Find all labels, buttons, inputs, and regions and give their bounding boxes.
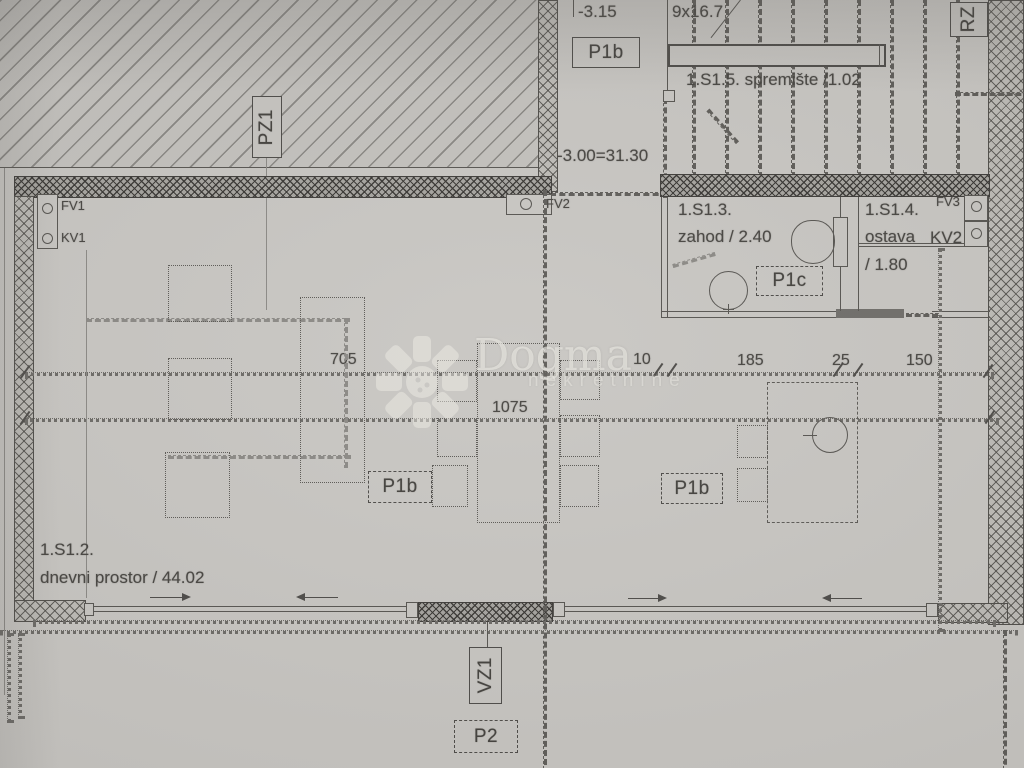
threshold-dotted-line [33, 620, 996, 624]
door-tag-p2: P2 [454, 720, 518, 753]
vz1-leader-line [487, 622, 488, 647]
vent-label-fv2: FV2 [546, 196, 570, 211]
track-end-cap [926, 603, 938, 617]
slide-arrow-right-icon [182, 593, 191, 601]
glazing-track [86, 611, 418, 612]
wc-bottom-wall-line [661, 317, 838, 318]
dimension-150: 150 [906, 352, 933, 370]
tag-rz: RZ [950, 2, 988, 37]
vent-circle-icon [520, 198, 532, 210]
glazing-track [553, 606, 938, 607]
window-tag-vz1: VZ1 [469, 647, 502, 704]
storage-room-area: / 1.80 [865, 255, 908, 275]
wc-storage-divider-line [858, 197, 859, 311]
glazing-track [86, 606, 418, 607]
stair-tread [923, 0, 927, 178]
dogma-logo-icon [372, 332, 472, 432]
floor-plan: PZ1 -3.15 P1b -3.00=31.30 9x16.7 1.S1.5.… [0, 0, 1024, 768]
understair-room-label: 1.S1.5. spremište /1.02 [686, 70, 861, 90]
stair-tread [890, 0, 894, 178]
stool [737, 425, 768, 458]
corridor-left-wall [538, 0, 558, 192]
chair [560, 415, 600, 457]
outer-boundary-line [4, 168, 5, 695]
toilet-cistern [833, 217, 848, 267]
slide-arrow-line [150, 597, 184, 598]
grid-line-vertical [1003, 630, 1007, 768]
slide-arrow-left-icon [296, 593, 305, 601]
armchair [168, 265, 232, 322]
wc-left-wall-line [661, 197, 662, 318]
dimension-185: 185 [737, 352, 764, 370]
beam-end-line [879, 44, 880, 67]
dimension-10: 10 [633, 351, 651, 369]
sofa [300, 297, 365, 483]
track-end-cap [553, 602, 565, 617]
p1b-label: P1b [674, 478, 709, 500]
storage-room-id: 1.S1.4. [865, 200, 919, 220]
stair-break-line [707, 109, 739, 144]
vent-circle-icon [971, 201, 982, 212]
slide-arrow-line [628, 598, 660, 599]
wc-left-wall-line [667, 197, 668, 318]
grid-line-vertical [938, 248, 942, 632]
toilet-bowl-icon [791, 220, 835, 264]
grid-line [955, 92, 1024, 96]
wc-bottom-wall-line [661, 311, 838, 312]
vent-label-fv3: FV3 [936, 194, 960, 209]
living-room-id: 1.S1.2. [40, 540, 94, 560]
door-tag-p1b-corridor: P1b [572, 37, 640, 68]
door-tag-p1c: P1c [756, 266, 823, 296]
slide-arrow-line [830, 598, 862, 599]
vent-circle-icon [42, 233, 53, 244]
living-room-label: dnevni prostor / 44.02 [40, 568, 204, 588]
track-end-cap [84, 603, 94, 616]
vent-circle-icon [971, 228, 982, 239]
bottom-center-pier [418, 602, 553, 622]
level-mark-tick [573, 0, 574, 17]
wc-door-swing [672, 252, 715, 268]
slide-arrow-left-icon [822, 594, 831, 602]
vz1-label: VZ1 [475, 657, 497, 693]
grid-line-vertical [18, 633, 22, 719]
stool [737, 468, 768, 502]
armchair [165, 452, 230, 518]
kitchen-sink-icon [812, 417, 848, 453]
living-top-wall [14, 176, 552, 198]
armchair [168, 358, 232, 420]
bottom-left-corner-wall [14, 600, 86, 622]
p1c-label: P1c [772, 270, 806, 292]
window-tag-pz1: PZ1 [252, 96, 282, 158]
chair [560, 465, 599, 507]
stair-edge-cap [663, 90, 675, 102]
glazing-track [553, 611, 938, 612]
slide-arrow-line [304, 597, 338, 598]
watermark-subtitle: nekretnine [528, 370, 687, 392]
stair-landing-beam [668, 44, 886, 67]
vent-circle-icon [42, 203, 53, 214]
sink-drain-mark [723, 309, 734, 310]
wc-room-label: zahod / 2.40 [678, 227, 772, 247]
p1b-label: P1b [382, 476, 417, 498]
vent-label-fv1: FV1 [61, 198, 85, 213]
p2-label: P2 [474, 726, 498, 748]
storage-room-name: ostava [865, 227, 915, 247]
wc-room-id: 1.S1.3. [678, 200, 732, 220]
rz-label: RZ [958, 6, 980, 32]
dimension-25: 25 [832, 352, 850, 370]
grid-line-vertical [7, 633, 11, 723]
living-left-wall [14, 196, 34, 622]
door-tag-p1b-left: P1b [368, 471, 432, 503]
vent-label-kv2: KV2 [930, 228, 962, 248]
level-upper-text: -3.15 [578, 2, 617, 22]
stair-count-text: 9x16.7 [672, 2, 723, 22]
kitchen-counter [767, 382, 858, 523]
storage-bottom-wall-solid [836, 309, 904, 318]
slide-arrow-right-icon [658, 594, 667, 602]
vent-label-kv1: KV1 [61, 230, 86, 245]
track-end-cap [406, 602, 418, 618]
p1b-label: P1b [588, 42, 623, 64]
grid-line-horizontal [0, 630, 1018, 634]
pz1-label: PZ1 [256, 109, 278, 145]
sink-tap-mark [803, 435, 817, 436]
level-main-text: -3.00=31.30 [557, 146, 648, 166]
door-tag-p1b-right: P1b [661, 473, 723, 504]
chair [432, 465, 468, 507]
